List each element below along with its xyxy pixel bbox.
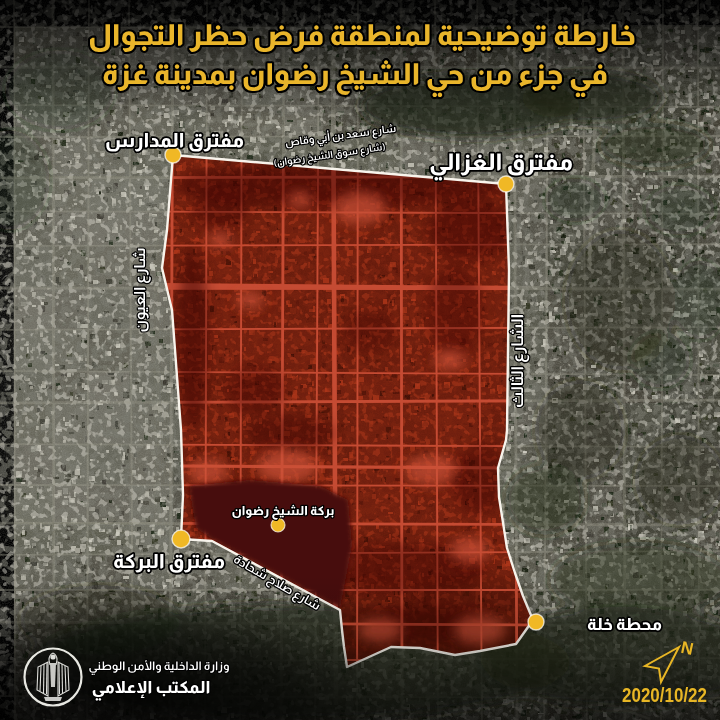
svg-text:2020/10/22: 2020/10/22	[622, 684, 707, 706]
